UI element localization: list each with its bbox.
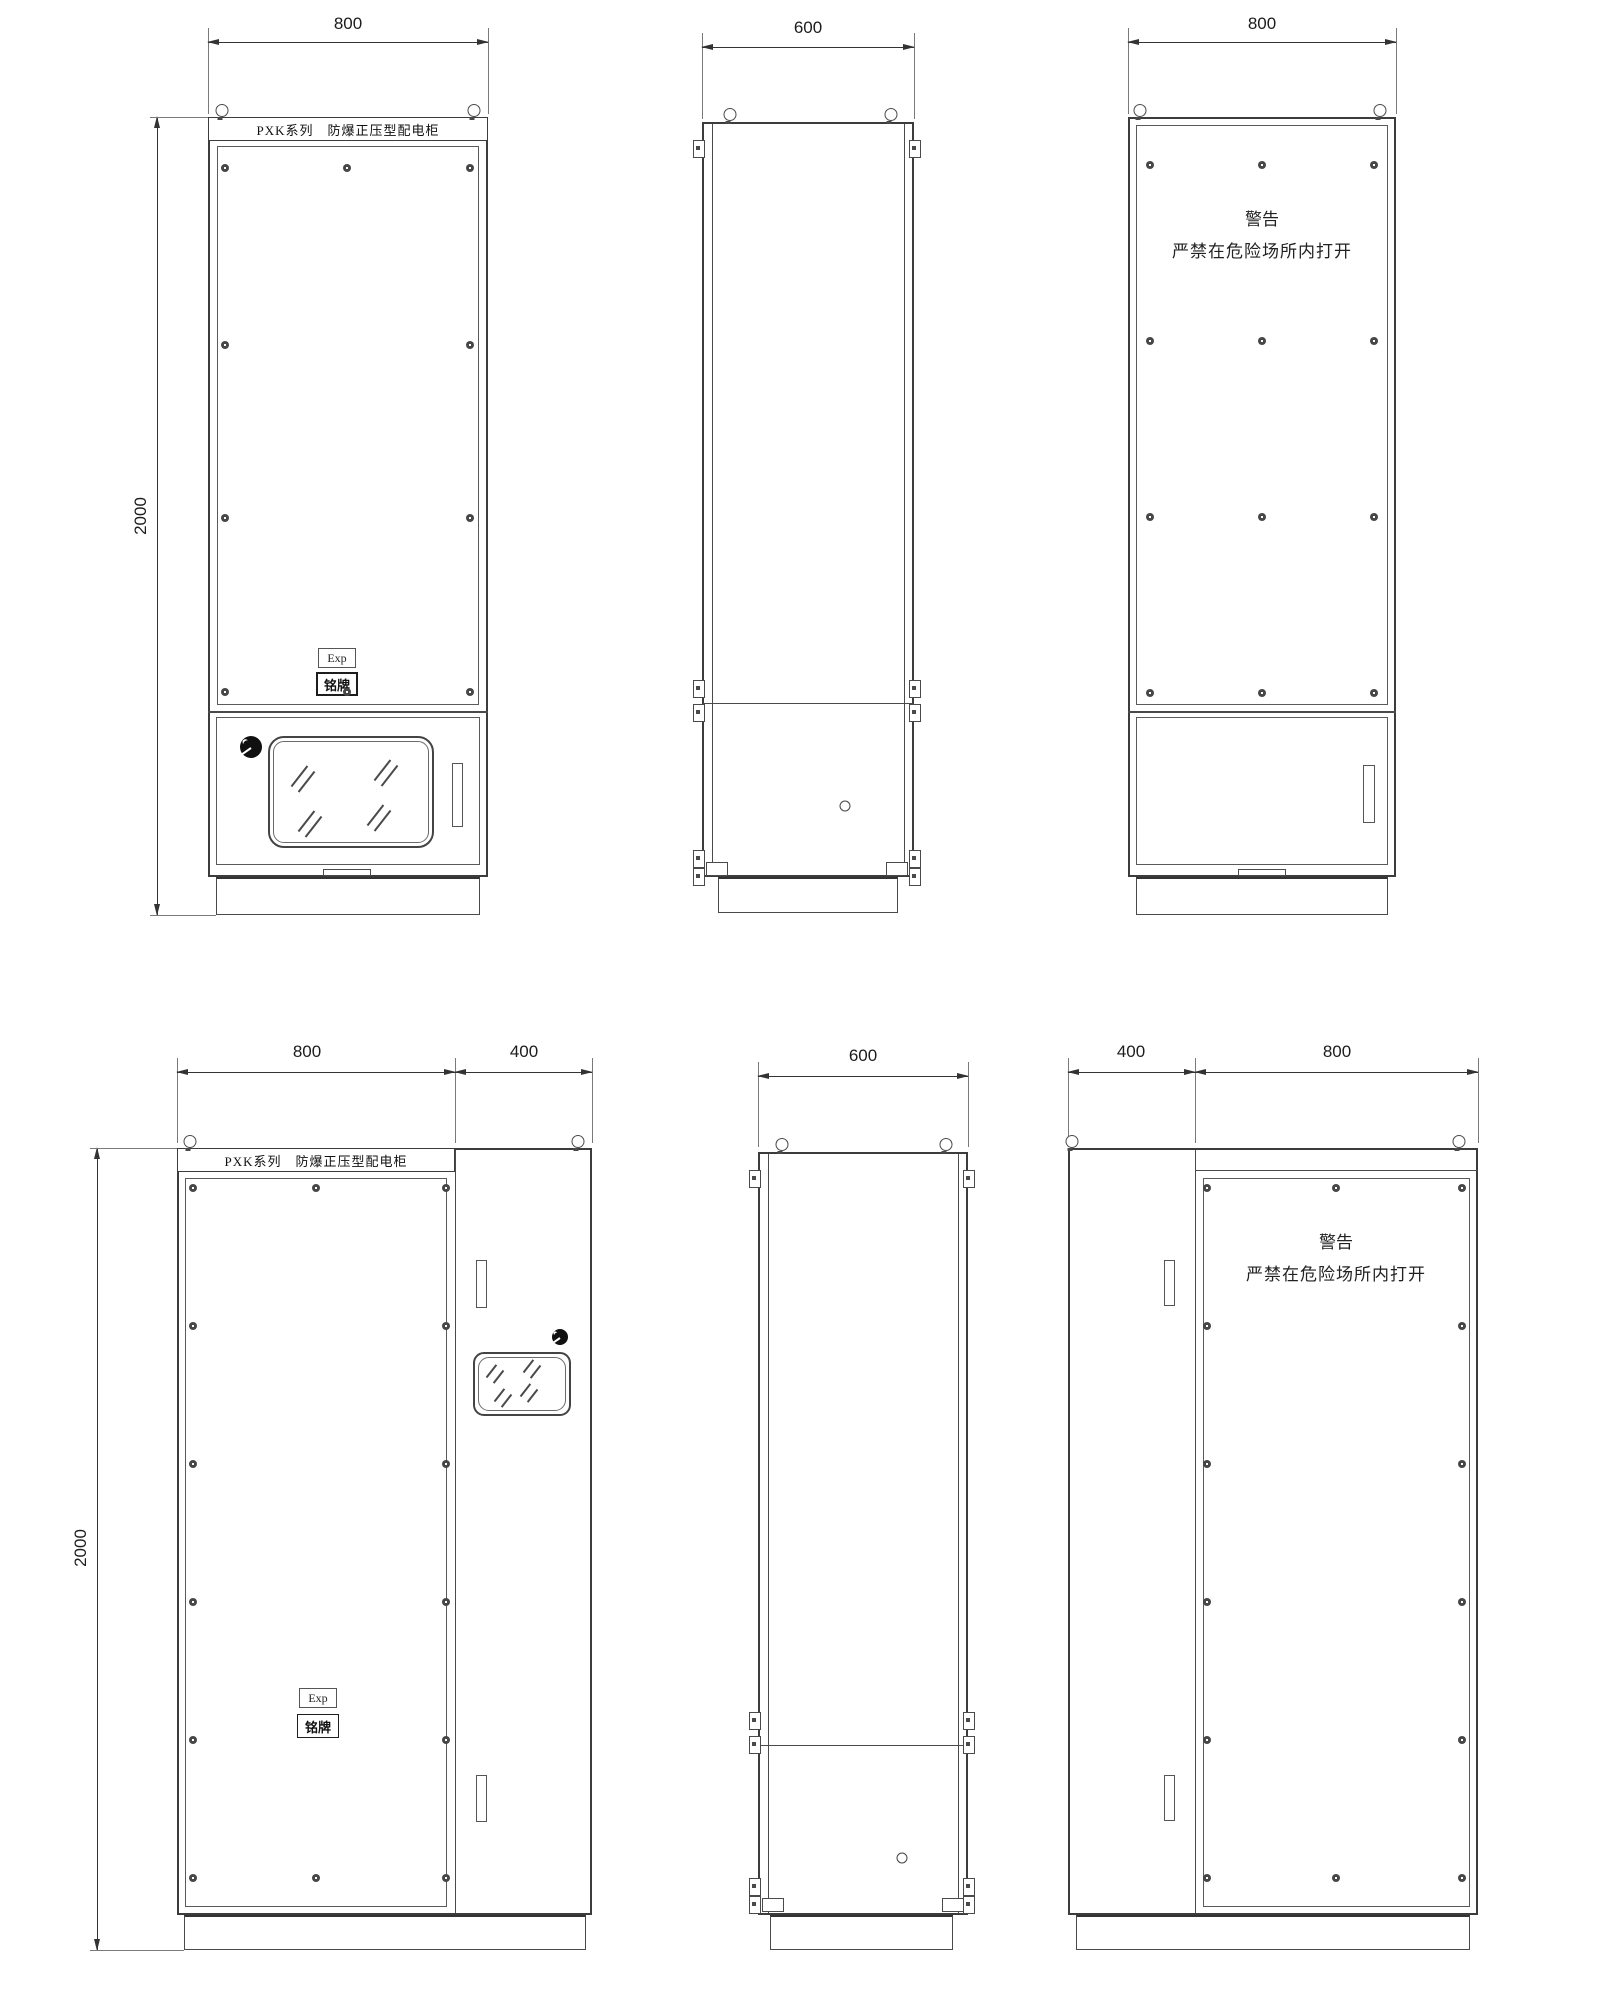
ext-line <box>90 1950 184 1951</box>
screw-icon <box>221 164 229 172</box>
screw-icon <box>1458 1184 1466 1192</box>
dim-line-rear-bottom-width <box>1195 1072 1478 1073</box>
handle-slot <box>1164 1260 1175 1306</box>
screw-icon <box>1146 161 1154 169</box>
lifting-eye-icon <box>572 1135 585 1148</box>
front-bottom-door-panel <box>185 1178 447 1907</box>
screw-icon <box>189 1874 197 1882</box>
side-view-top-body <box>702 122 914 877</box>
hinge-icon <box>749 1878 761 1896</box>
screw-icon <box>1258 689 1266 697</box>
hinge-icon <box>963 1712 975 1730</box>
nameplate-label: 铭牌 <box>305 1717 331 1736</box>
screw-icon <box>1146 689 1154 697</box>
screw-icon <box>1370 689 1378 697</box>
hinge-icon <box>909 680 921 698</box>
lifting-eye-icon <box>216 104 229 117</box>
hinge-icon <box>749 1896 761 1914</box>
front-top-door-split <box>208 711 488 713</box>
dim-line-front-top-height <box>157 117 158 915</box>
screw-icon <box>466 514 474 522</box>
exp-label: Exp <box>308 1691 327 1706</box>
dim-rear-top-width: 800 <box>1245 14 1279 34</box>
hinge-icon <box>909 140 921 158</box>
front-bottom-title-band: PXK系列 防爆正压型配电柜 <box>177 1148 455 1172</box>
screw-icon <box>221 688 229 696</box>
lifting-eye-icon <box>1066 1135 1079 1148</box>
base-foot <box>1238 869 1286 876</box>
side-bottom-front-edge <box>768 1154 769 1913</box>
screw-icon <box>1370 513 1378 521</box>
screw-icon <box>1458 1322 1466 1330</box>
dim-line-rear-top-width <box>1128 42 1396 43</box>
screw-icon <box>343 688 351 696</box>
side-top-plinth <box>718 877 898 913</box>
dim-front-top-width: 800 <box>331 14 365 34</box>
warning-text: 严禁在危险场所内打开 <box>1132 235 1392 269</box>
screw-icon <box>442 1598 450 1606</box>
side-bottom-plinth <box>770 1915 953 1950</box>
pressure-gauge-icon <box>552 1329 568 1345</box>
lifting-eye-icon <box>724 108 737 121</box>
hinge-icon <box>909 868 921 886</box>
hinge-icon <box>963 1878 975 1896</box>
lifting-eye-icon <box>1374 104 1387 117</box>
dim-line-rear-bottom-side <box>1068 1072 1195 1073</box>
ext-line <box>150 915 216 916</box>
rear-top-plinth <box>1136 877 1388 915</box>
screw-icon <box>1458 1460 1466 1468</box>
dim-line-front-bottom-side <box>455 1072 592 1073</box>
rear-bottom-plinth <box>1076 1915 1470 1950</box>
screw-icon <box>1203 1598 1211 1606</box>
screw-icon <box>1458 1736 1466 1744</box>
front-top-plinth <box>216 877 480 915</box>
screw-icon <box>312 1874 320 1882</box>
screw-icon <box>1258 161 1266 169</box>
hinge-icon <box>749 1170 761 1188</box>
rear-top-lower-door <box>1136 717 1388 865</box>
hinge-icon <box>963 1736 975 1754</box>
dim-line-front-top-width <box>208 42 488 43</box>
warning-text: 严禁在危险场所内打开 <box>1206 1258 1466 1292</box>
hinge-icon <box>749 1712 761 1730</box>
nameplate-box: 铭牌 <box>316 672 358 696</box>
lifting-eye-icon <box>1134 104 1147 117</box>
door-hole <box>840 801 851 812</box>
hinge-icon <box>693 140 705 158</box>
pressure-gauge-icon <box>240 736 262 758</box>
exp-mark-box: Exp <box>299 1688 337 1708</box>
handle-slot <box>1363 765 1375 823</box>
rear-top-warning: 警告 严禁在危险场所内打开 <box>1132 205 1392 269</box>
screw-icon <box>466 341 474 349</box>
front-top-upper-panel <box>217 146 479 705</box>
hinge-icon <box>963 1170 975 1188</box>
hinge-icon <box>693 680 705 698</box>
screw-icon <box>189 1598 197 1606</box>
screw-icon <box>1203 1184 1211 1192</box>
screw-icon <box>442 1736 450 1744</box>
lifting-eye-icon <box>776 1138 789 1151</box>
screw-icon <box>1458 1598 1466 1606</box>
dim-front-bottom-width: 800 <box>290 1042 324 1062</box>
viewing-window <box>268 736 434 848</box>
dim-line-front-bottom-height <box>97 1148 98 1950</box>
dim-line-side-bottom-width <box>758 1076 968 1077</box>
side-top-door-split <box>703 703 913 704</box>
lifting-eye-icon <box>1453 1135 1466 1148</box>
base-foot <box>323 869 371 876</box>
screw-icon <box>442 1322 450 1330</box>
screw-icon <box>466 688 474 696</box>
lifting-eye-icon <box>468 104 481 117</box>
screw-icon <box>1203 1736 1211 1744</box>
base-foot <box>762 1898 784 1912</box>
screw-icon <box>221 514 229 522</box>
screw-icon <box>1146 337 1154 345</box>
ext-line <box>90 1148 177 1149</box>
screw-icon <box>1258 513 1266 521</box>
front-top-title-band: PXK系列 防爆正压型配电柜 <box>208 117 488 141</box>
dim-front-bottom-height: 2000 <box>71 1526 91 1570</box>
lifting-eye-icon <box>885 108 898 121</box>
hinge-icon <box>909 850 921 868</box>
screw-icon <box>343 164 351 172</box>
screw-icon <box>189 1184 197 1192</box>
handle-slot <box>452 763 463 827</box>
dim-side-top-width: 600 <box>791 18 825 38</box>
hinge-icon <box>749 1736 761 1754</box>
hinge-icon <box>693 850 705 868</box>
screw-icon <box>442 1874 450 1882</box>
lifting-eye-icon <box>184 1135 197 1148</box>
exp-mark-box: Exp <box>318 648 356 668</box>
dim-line-front-bottom-width <box>177 1072 455 1073</box>
screw-icon <box>1370 337 1378 345</box>
base-foot <box>706 862 728 876</box>
screw-icon <box>189 1460 197 1468</box>
screw-icon <box>189 1736 197 1744</box>
handle-slot <box>476 1775 487 1822</box>
lifting-eye-icon <box>940 1138 953 1151</box>
base-foot <box>886 862 908 876</box>
dim-front-top-height: 2000 <box>131 494 151 538</box>
screw-icon <box>466 164 474 172</box>
handle-slot <box>1164 1775 1175 1821</box>
screw-icon <box>1203 1460 1211 1468</box>
nameplate-box: 铭牌 <box>297 1714 339 1738</box>
viewing-window <box>473 1352 571 1416</box>
dim-rear-bottom-width: 800 <box>1320 1042 1354 1062</box>
screw-icon <box>1203 1874 1211 1882</box>
warning-title: 警告 <box>1206 1228 1466 1258</box>
hinge-icon <box>693 704 705 722</box>
rear-bottom-top-band <box>1195 1170 1478 1171</box>
rear-bottom-warning: 警告 严禁在危险场所内打开 <box>1206 1228 1466 1292</box>
warning-title: 警告 <box>1132 205 1392 235</box>
dim-front-bottom-side: 400 <box>507 1042 541 1062</box>
hinge-icon <box>909 704 921 722</box>
dim-side-bottom-width: 600 <box>846 1046 880 1066</box>
front-bottom-plinth <box>184 1915 586 1950</box>
screw-icon <box>312 1184 320 1192</box>
base-foot <box>942 1898 964 1912</box>
side-top-front-edge <box>712 124 713 875</box>
side-bottom-door-split <box>759 1745 967 1746</box>
screw-icon <box>1146 513 1154 521</box>
front-bottom-section-divider <box>455 1150 456 1913</box>
drawing-canvas: 800 2000 PXK系列 防爆正压型配电柜 Exp 铭牌 600 800 警… <box>0 0 1613 2010</box>
handle-slot <box>476 1260 487 1308</box>
dim-line-side-top-width <box>702 47 914 48</box>
screw-icon <box>189 1322 197 1330</box>
series-title-label: PXK系列 防爆正压型配电柜 <box>256 120 439 139</box>
screw-icon <box>442 1184 450 1192</box>
rear-top-door-split <box>1128 711 1396 713</box>
hinge-icon <box>693 868 705 886</box>
side-view-bottom-body <box>758 1152 968 1915</box>
screw-icon <box>442 1460 450 1468</box>
screw-icon <box>1370 161 1378 169</box>
screw-icon <box>1258 337 1266 345</box>
screw-icon <box>1332 1874 1340 1882</box>
screw-icon <box>1203 1322 1211 1330</box>
hinge-icon <box>963 1896 975 1914</box>
side-bottom-rear-edge <box>958 1154 959 1913</box>
rear-bottom-section-divider <box>1195 1150 1196 1913</box>
screw-icon <box>1332 1184 1340 1192</box>
dim-rear-bottom-side: 400 <box>1114 1042 1148 1062</box>
exp-label: Exp <box>327 651 346 666</box>
side-top-rear-edge <box>904 124 905 875</box>
ext-line <box>150 117 208 118</box>
series-title-label: PXK系列 防爆正压型配电柜 <box>224 1151 407 1170</box>
door-hole <box>897 1853 908 1864</box>
screw-icon <box>221 341 229 349</box>
screw-icon <box>1458 1874 1466 1882</box>
